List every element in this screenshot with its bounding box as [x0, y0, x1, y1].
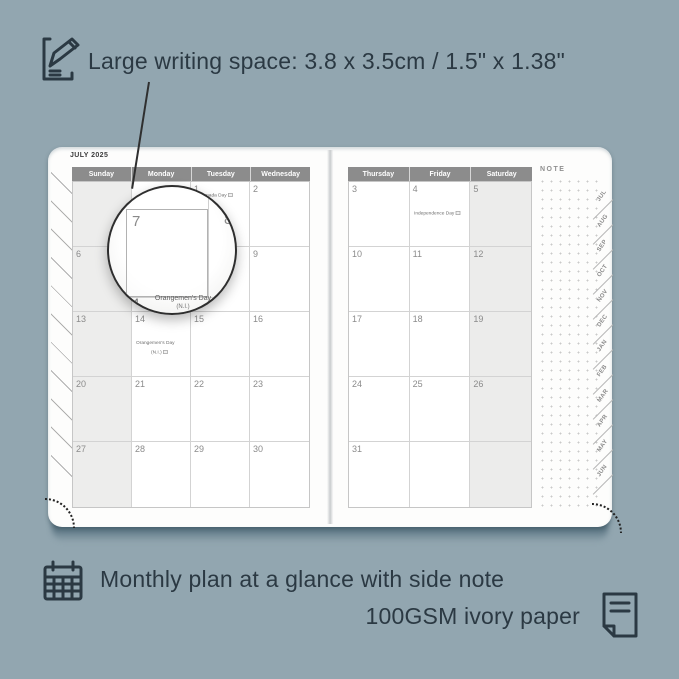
month-tab-jan: JAN	[594, 335, 612, 360]
date-number: 23	[253, 379, 263, 389]
month-tab-apr: APR	[594, 410, 612, 435]
calendar-cell: 23	[250, 377, 309, 442]
date-number: 27	[76, 444, 86, 454]
calendar-cell: 12	[470, 247, 531, 312]
holiday-flag-icon	[163, 350, 168, 354]
month-tab-label: NOV	[597, 289, 610, 304]
month-tab-aug: AUG	[594, 210, 612, 235]
holiday-label: Independence Day	[414, 211, 461, 216]
month-tab-label: OCT	[596, 264, 609, 279]
bottom-annotation-line1: Monthly plan at a glance with side note	[100, 566, 504, 593]
magnified-date: 8	[224, 211, 232, 228]
calendar-cell: 11	[410, 247, 471, 312]
month-tab-jul: JUL	[594, 185, 612, 210]
date-number: 10	[352, 249, 362, 259]
month-tab-label: MAR	[597, 388, 610, 403]
date-number: 18	[413, 314, 423, 324]
date-number: 16	[253, 314, 263, 324]
calendar-cell: 2	[250, 182, 309, 247]
calendar-cell	[410, 442, 471, 507]
weekday-label: Tuesday	[192, 167, 252, 181]
calendar-cell: 19	[470, 312, 531, 377]
date-number: 3	[352, 184, 357, 194]
month-tab-label: DEC	[596, 314, 609, 329]
calendar-cell: 5	[470, 182, 531, 247]
weekday-label: Saturday	[471, 167, 532, 181]
month-tab-label: MAY	[596, 439, 609, 454]
left-binding-hatch	[51, 171, 72, 483]
month-tab-label: APR	[596, 414, 609, 429]
calendar-cell: 30	[250, 442, 309, 507]
holiday-label-2: (N.I.)	[151, 350, 182, 355]
calendar-cell: 18	[410, 312, 471, 377]
product-infographic: { "colors": { "background": "#92a6b0", "…	[0, 0, 679, 679]
calendar-cell: 16	[250, 312, 309, 377]
calendar-cell	[470, 442, 531, 507]
weekday-label: Thursday	[348, 167, 410, 181]
paper-page-icon	[596, 590, 642, 642]
date-number: 12	[473, 249, 483, 259]
date-number: 30	[253, 444, 263, 454]
date-number: 21	[135, 379, 145, 389]
calendar-cell: 4Independence Day	[410, 182, 471, 247]
date-number: 11	[413, 249, 422, 259]
date-number: 17	[352, 314, 362, 324]
date-number: 5	[473, 184, 478, 194]
month-tab-may: MAY	[594, 435, 612, 460]
note-dot-grid	[538, 177, 602, 507]
weekday-header-right: ThursdayFridaySaturday	[348, 167, 532, 181]
calendar-cell: 21	[132, 377, 191, 442]
top-annotation-text: Large writing space: 3.8 x 3.5cm / 1.5" …	[88, 48, 565, 75]
date-number: 13	[76, 314, 86, 324]
calendar-cell: 17	[349, 312, 410, 377]
calendar-cell: 15	[191, 312, 250, 377]
weekday-label: Friday	[410, 167, 472, 181]
calendar-grid-icon	[40, 558, 86, 604]
month-title: JULY 2025	[70, 152, 108, 159]
date-number: 4	[413, 184, 418, 194]
month-tab-label: AUG	[597, 213, 610, 228]
date-number: 19	[473, 314, 483, 324]
magnified-holiday: Orangemen's Day	[145, 295, 221, 302]
date-number: 25	[413, 379, 423, 389]
holiday-label: Orangemen's Day	[136, 341, 175, 346]
calendar-cell: 28	[132, 442, 191, 507]
date-number: 15	[194, 314, 204, 324]
calendar-cell: 26	[470, 377, 531, 442]
date-number: 20	[76, 379, 86, 389]
calendar-cell: 25	[410, 377, 471, 442]
date-number: 2	[253, 184, 258, 194]
month-tab-dec: DEC	[594, 310, 612, 335]
date-number: 22	[194, 379, 204, 389]
weekday-label: Monday	[132, 167, 192, 181]
date-number: 6	[76, 249, 81, 259]
date-number: 29	[194, 444, 204, 454]
magnified-date: 7	[132, 213, 140, 230]
month-tab-label: JUL	[596, 189, 608, 202]
holiday-flag-icon	[456, 211, 461, 215]
calendar-cell: 3	[349, 182, 410, 247]
calendar-cell: 22	[191, 377, 250, 442]
date-number: 24	[352, 379, 362, 389]
month-tab-label: JAN	[596, 339, 608, 353]
calendar-grid-right: 34Independence Day510111217181924252631	[348, 181, 532, 508]
note-label: NOTE	[540, 166, 565, 173]
calendar-cell: 13	[73, 312, 132, 377]
magnified-holiday-2: (N.I.)	[145, 304, 221, 310]
magnifier-circle: 7 8 14 Orangemen's Day (N.I.)	[107, 185, 237, 315]
calendar-cell: 24	[349, 377, 410, 442]
weekday-header-left: SundayMondayTuesdayWednesday	[72, 167, 310, 181]
magnified-date: 14	[124, 295, 140, 311]
month-tab-label: JUN	[596, 464, 608, 478]
calendar-cell: 14Orangemen's Day(N.I.)	[132, 312, 191, 377]
calendar-cell: 31	[349, 442, 410, 507]
month-tab-mar: MAR	[594, 385, 612, 410]
date-number: 14	[135, 314, 145, 324]
calendar-cell: 9	[250, 247, 309, 312]
weekday-label: Sunday	[72, 167, 132, 181]
month-tab-label: FEB	[596, 364, 608, 378]
month-tab-jun: JUN	[594, 460, 612, 485]
month-tab-label: SEP	[596, 239, 608, 253]
month-tab-oct: OCT	[594, 260, 612, 285]
bottom-annotation-line2: 100GSM ivory paper	[0, 603, 580, 630]
weekday-label: Wednesday	[251, 167, 310, 181]
calendar-cell: 27	[73, 442, 132, 507]
book-spine	[327, 150, 334, 524]
month-tab-nov: NOV	[594, 285, 612, 310]
pencil-note-icon	[36, 33, 86, 85]
month-tab-feb: FEB	[594, 360, 612, 385]
date-number: 26	[473, 379, 483, 389]
holiday-flag-icon	[228, 193, 233, 197]
month-tab-strip: JULAUGSEPOCTNOVDECJANFEBMARAPRMAYJUN	[594, 185, 612, 487]
date-number: 31	[352, 444, 362, 454]
calendar-cell: 20	[73, 377, 132, 442]
calendar-cell: 10	[349, 247, 410, 312]
date-number: 28	[135, 444, 145, 454]
month-tab-sep: SEP	[594, 235, 612, 260]
date-number: 9	[253, 249, 258, 259]
calendar-cell: 29	[191, 442, 250, 507]
